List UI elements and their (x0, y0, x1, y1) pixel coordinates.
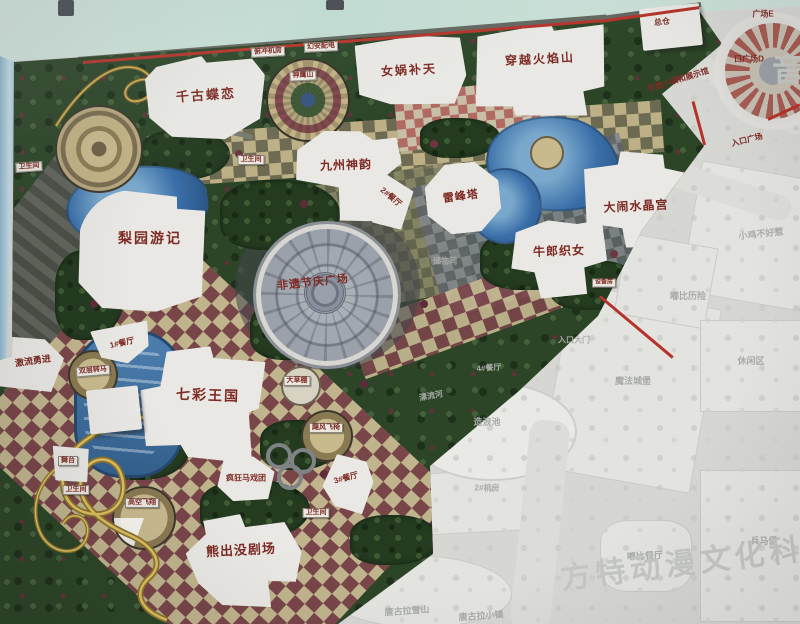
area-label-feiyi-xiaozhen: 非遗小镇和展示馆 (646, 66, 710, 93)
faded-label-tanggula-xiaozhen: 唐古拉小镇 (458, 609, 504, 622)
faded-partial-char-yin: 音 (772, 52, 800, 89)
faded-park-title: 方特动漫文化科技 (559, 529, 800, 597)
toilet-label-4: 卫生间 (303, 508, 330, 518)
attraction-label-danao-shuijinggong: 大闹水晶宫 (603, 198, 669, 215)
plaza-label-guangchang-e: 广场E (752, 9, 773, 18)
attraction-label-liyuan-youji: 梨园游记 (118, 230, 182, 246)
restaurant-label-1: 1#餐厅 (109, 336, 135, 350)
feature-label-dacaopeng: 大草棚 (284, 376, 311, 386)
attraction-label-xiongchumo-juchang: 熊出没剧场 (206, 542, 277, 561)
faded-label-xiaoji-buhaore: 小鸡不好惹 (738, 227, 784, 242)
attraction-label-leifengta: 雷峰塔 (442, 188, 479, 206)
building-label-zongcang: 总仓 (654, 17, 671, 28)
service-label-huanan-peidian: 幻安配电 (304, 41, 338, 53)
plaza-label-rukou-guangchang: 入口广场 (730, 132, 763, 149)
attraction-label-qiangu-dielian: 千古蝶恋 (176, 86, 237, 105)
attraction-label-qicai-wangguo: 七彩王国 (176, 386, 241, 404)
faded-label-dubi-lixian: 嘟比历险 (670, 291, 706, 301)
service-label-fuchong-jifang: 俯冲机房 (251, 46, 285, 58)
attraction-label-shuangceng-zhuanma: 双层转马 (76, 365, 111, 378)
stage-label-wutai: 舞台 (58, 456, 78, 466)
plaza-label-guangchang-d: 口广场D (734, 54, 764, 63)
restaurant-label-3: 3#餐厅 (333, 470, 359, 485)
faded-label-piaoliuhe: 漂流河 (418, 389, 443, 402)
attraction-label-niulang-zhinv: 牛郎织女 (533, 244, 585, 260)
service-label-shebeifang: 设备房 (592, 279, 616, 288)
park-map-photo: 千古蝶恋女娲补天穿越火焰山九州神韵雷峰塔大闹水晶宫牛郎织女梨园游记七彩王国熊出没… (0, 0, 800, 624)
toilet-label-1: 卫生间 (15, 161, 43, 173)
attraction-label-gaokong-feixiang: 高空飞翔 (125, 498, 159, 508)
faded-label-tanggula-xueshan: 唐古拉雪山 (384, 604, 430, 617)
toilet-label-3: 卫生间 (63, 485, 90, 495)
plaza-label-feiyi-jieqing: 非遗节庆广场 (277, 273, 350, 293)
attraction-label-chuanyue-huoyanshan: 穿越火焰山 (505, 51, 576, 68)
faded-label-jifang-2: 2#机房 (475, 483, 500, 492)
faded-label-rukou-damen: 入口大门 (558, 335, 590, 344)
attraction-label-jiuzhou-shenyun: 九州神韵 (320, 158, 372, 174)
faded-label-canting-4: 4#餐厅 (476, 363, 501, 374)
faded-label-chuwujian: 储物间 (433, 256, 457, 265)
toilet-label-2: 卫生间 (238, 155, 265, 165)
restaurant-label-2: 2#餐厅 (379, 185, 404, 208)
faded-label-zaolangchi: 造浪池 (473, 417, 500, 427)
attraction-label-jufeng-feiyi: 飓风飞椅 (309, 423, 343, 433)
attraction-label-fengkuang-maxituan: 疯狂马戏团 (226, 473, 266, 482)
attraction-label-nuwa-butian: 女娲补天 (381, 63, 438, 80)
faded-label-xiuxianqu: 休闲区 (737, 356, 764, 366)
attraction-label-jiliu-yongjin: 激流勇进 (14, 353, 51, 368)
faded-label-mofa-chengbao: 魔法城堡 (615, 376, 651, 386)
label-layer: 千古蝶恋女娲补天穿越火焰山九州神韵雷峰塔大闹水晶宫牛郎织女梨园游记七彩王国熊出没… (0, 0, 800, 624)
feature-label-shenying-shan: 神鹰山 (289, 70, 316, 81)
